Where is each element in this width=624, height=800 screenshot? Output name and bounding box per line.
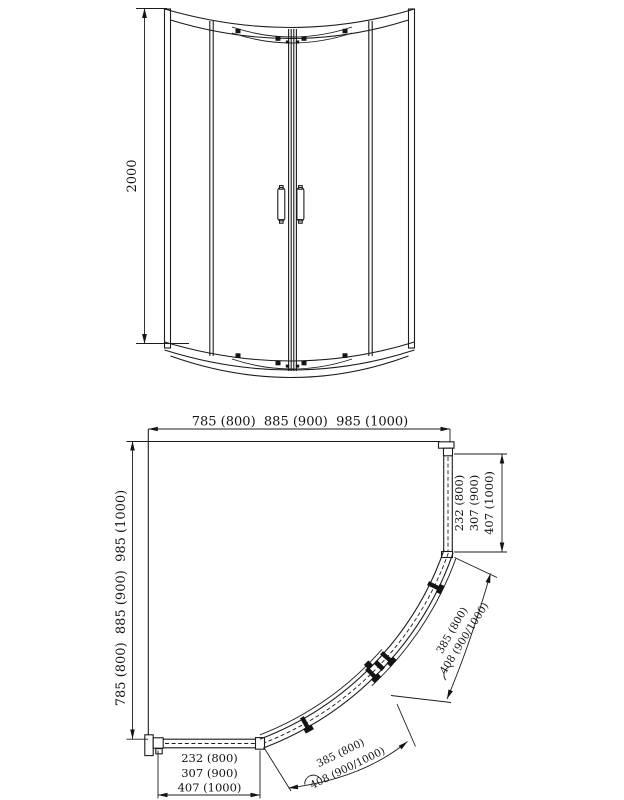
plan-height-label: 785 (800) 885 (900) 985 (1000) — [114, 490, 129, 707]
bottom-panel-width-label-3: 407 (1000) — [178, 781, 242, 795]
right-panel-width-label-2: 307 (900) — [467, 475, 481, 532]
right-panel-width-label-3: 407 (1000) — [482, 471, 496, 535]
technical-drawing-sheet: 2000 — [0, 0, 624, 800]
bottom-panel-width-label-1: 232 (800) — [181, 751, 238, 765]
shower-enclosure-technical-drawing: 2000 — [0, 0, 624, 800]
elevation-height-label: 2000 — [125, 159, 140, 192]
bottom-panel-width-label-2: 307 (900) — [181, 766, 238, 780]
right-panel-width-label-1: 232 (800) — [452, 475, 466, 532]
sheet-background — [0, 0, 624, 800]
plan-width-label: 785 (800) 885 (900) 985 (1000) — [192, 415, 409, 430]
